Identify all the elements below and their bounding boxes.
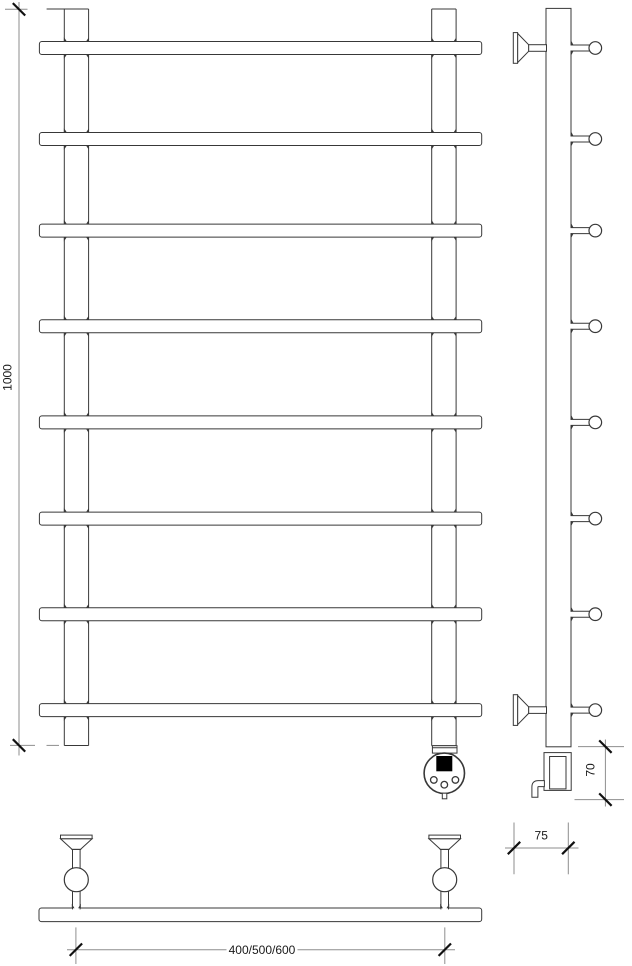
svg-text:1000: 1000 <box>0 364 14 391</box>
svg-text:70: 70 <box>584 763 598 777</box>
svg-text:400/500/600: 400/500/600 <box>229 943 296 957</box>
svg-text:75: 75 <box>535 829 549 843</box>
